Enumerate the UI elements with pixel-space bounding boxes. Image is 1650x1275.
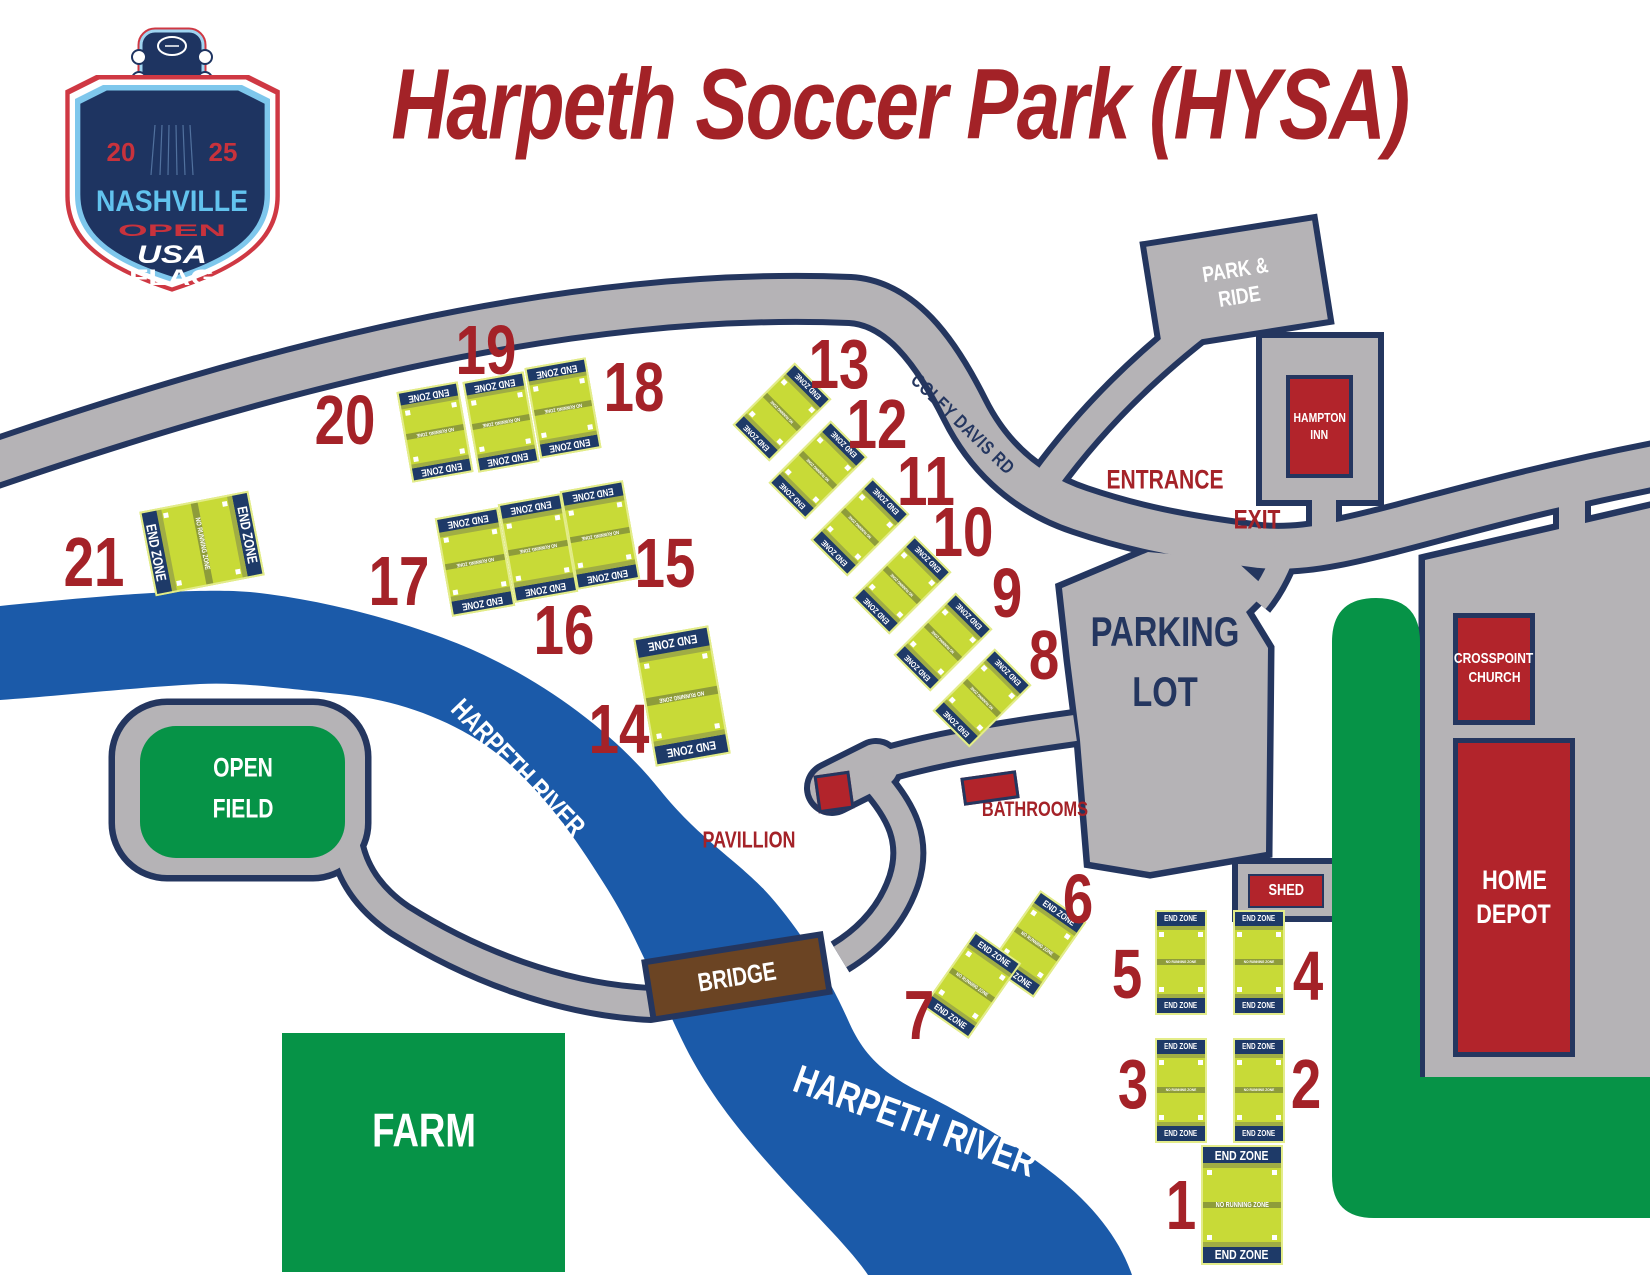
end-zone-label: END ZONE bbox=[1215, 1247, 1269, 1262]
nashville-open-logo: 20 25 NASHVILLE OPEN USA FLAG bbox=[65, 31, 279, 292]
end-zone-label: END ZONE bbox=[1215, 1148, 1269, 1163]
end-zone-label: END ZONE bbox=[1164, 914, 1197, 923]
pavillion-building bbox=[814, 771, 855, 814]
field-number-7: 7 bbox=[904, 975, 934, 1055]
exit-label: EXIT bbox=[1234, 505, 1281, 536]
park-ride-label-line2: RIDE bbox=[1216, 280, 1262, 314]
crosspoint-label-line2: CHURCH bbox=[1468, 669, 1520, 688]
home-depot-label-line2: DEPOT bbox=[1477, 898, 1551, 932]
field-number-4: 4 bbox=[1293, 936, 1323, 1016]
field-number-19: 19 bbox=[456, 310, 517, 390]
no-running-zone-label: NO RUNNING ZONE bbox=[416, 426, 454, 439]
crosspoint-label-line1: CROSSPOINT bbox=[1454, 650, 1533, 669]
corner-marker bbox=[492, 529, 498, 535]
corner-marker bbox=[1276, 987, 1281, 992]
end-zone-label: END ZONE bbox=[1164, 1001, 1197, 1010]
field-number-14: 14 bbox=[589, 689, 650, 769]
no-running-zone-label: NO RUNNING ZONE bbox=[1020, 931, 1055, 958]
corner-marker bbox=[1276, 1115, 1281, 1120]
field-2: END ZONENO RUNNING ZONEEND ZONE bbox=[1233, 1038, 1285, 1143]
logo-year-right: 25 bbox=[209, 137, 238, 167]
field-number-2: 2 bbox=[1291, 1044, 1321, 1124]
no-running-zone-label: NO RUNNING ZONE bbox=[659, 689, 705, 703]
home-depot-label-line1: HOME bbox=[1482, 864, 1547, 898]
parking-lot-label-line1: PARKING bbox=[1091, 608, 1240, 656]
no-running-zone-label: NO RUNNING ZONE bbox=[1215, 1202, 1268, 1209]
corner-marker bbox=[568, 510, 574, 516]
end-zone-label: END ZONE bbox=[1242, 1001, 1275, 1010]
corner-marker bbox=[644, 664, 650, 670]
corner-marker bbox=[533, 386, 539, 392]
corner-marker bbox=[453, 589, 459, 595]
no-running-zone-label: NO RUNNING ZONE bbox=[805, 457, 830, 482]
corner-marker bbox=[177, 579, 183, 585]
field-number-1: 1 bbox=[1166, 1165, 1196, 1245]
corner-marker bbox=[1237, 932, 1242, 937]
no-running-zone-label: NO RUNNING ZONE bbox=[889, 572, 914, 597]
field-number-17: 17 bbox=[369, 541, 430, 621]
entrance-label: ENTRANCE bbox=[1106, 465, 1223, 496]
no-running-zone-label: NO RUNNING ZONE bbox=[1166, 959, 1196, 964]
hampton-inn-building: HAMPTON INN bbox=[1286, 375, 1353, 478]
corner-marker bbox=[1159, 987, 1164, 992]
corner-marker bbox=[1159, 932, 1164, 937]
corner-marker bbox=[564, 567, 570, 573]
field-number-9: 9 bbox=[992, 553, 1022, 633]
corner-marker bbox=[405, 410, 411, 416]
no-running-zone-label: NO RUNNING ZONE bbox=[456, 556, 494, 569]
field-5: END ZONENO RUNNING ZONEEND ZONE bbox=[1155, 910, 1207, 1015]
corner-marker bbox=[526, 439, 532, 445]
corner-marker bbox=[588, 425, 594, 431]
no-running-zone-label: NO RUNNING ZONE bbox=[482, 416, 520, 429]
corner-marker bbox=[1276, 932, 1281, 937]
field-3: END ZONENO RUNNING ZONEEND ZONE bbox=[1155, 1038, 1207, 1143]
end-zone-label: END ZONE bbox=[1242, 914, 1275, 923]
no-running-zone-label: NO RUNNING ZONE bbox=[519, 542, 557, 555]
field-number-21: 21 bbox=[64, 522, 125, 602]
corner-marker bbox=[1198, 987, 1203, 992]
no-running-zone-label: NO RUNNING ZONE bbox=[194, 516, 211, 570]
corner-marker bbox=[656, 733, 662, 739]
field-number-8: 8 bbox=[1029, 615, 1059, 695]
end-zone-label: END ZONE bbox=[1164, 1042, 1197, 1051]
corner-marker bbox=[443, 537, 449, 543]
field-number-3: 3 bbox=[1118, 1044, 1148, 1124]
corner-marker bbox=[702, 653, 708, 659]
no-running-zone-label: NO RUNNING ZONE bbox=[581, 529, 619, 542]
no-running-zone-label: NO RUNNING ZONE bbox=[847, 514, 872, 539]
corner-marker bbox=[1159, 1115, 1164, 1120]
crosspoint-church-building: CROSSPOINT CHURCH bbox=[1453, 613, 1535, 725]
corner-marker bbox=[1207, 1170, 1212, 1175]
corner-marker bbox=[1237, 1060, 1242, 1065]
field-4: END ZONENO RUNNING ZONEEND ZONE bbox=[1233, 910, 1285, 1015]
corner-marker bbox=[579, 377, 585, 383]
open-field-area bbox=[140, 726, 345, 858]
corner-marker bbox=[479, 447, 485, 453]
shed-building: SHED bbox=[1248, 874, 1324, 908]
corner-marker bbox=[1237, 1115, 1242, 1120]
field-number-15: 15 bbox=[635, 523, 696, 603]
farm-label: FARM bbox=[372, 1103, 476, 1158]
corner-marker bbox=[517, 391, 523, 397]
field-number-13: 13 bbox=[809, 324, 870, 404]
corner-marker bbox=[1198, 1115, 1203, 1120]
corner-marker bbox=[222, 501, 228, 507]
logo-event: OPEN bbox=[118, 221, 226, 240]
corner-marker bbox=[1159, 1060, 1164, 1065]
logo-org-bottom: FLAG bbox=[129, 265, 215, 290]
logo-city: NASHVILLE bbox=[96, 185, 248, 218]
open-field-label-line1: OPEN bbox=[213, 753, 273, 784]
field-number-20: 20 bbox=[315, 380, 376, 460]
page-title: Harpeth Soccer Park (HYSA) bbox=[391, 48, 1408, 163]
no-running-zone-label: NO RUNNING ZONE bbox=[1166, 1087, 1196, 1092]
corner-marker bbox=[1237, 987, 1242, 992]
no-running-zone-label: NO RUNNING ZONE bbox=[930, 629, 955, 654]
open-field-label-line2: FIELD bbox=[213, 794, 274, 825]
home-depot-building: HOME DEPOT bbox=[1453, 738, 1575, 1057]
corner-marker bbox=[235, 568, 241, 574]
no-running-zone-label: NO RUNNING ZONE bbox=[969, 685, 994, 710]
end-zone-label: END ZONE bbox=[1242, 1129, 1275, 1138]
end-zone-label: END ZONE bbox=[1164, 1129, 1197, 1138]
corner-marker bbox=[1272, 1235, 1277, 1240]
no-running-zone-label: NO RUNNING ZONE bbox=[769, 399, 794, 424]
corner-marker bbox=[451, 401, 457, 407]
end-zone-label: END ZONE bbox=[1242, 1042, 1275, 1051]
field-number-5: 5 bbox=[1112, 934, 1142, 1014]
logo-year-left: 20 bbox=[107, 137, 136, 167]
corner-marker bbox=[501, 581, 507, 587]
pavillion-label: PAVILLION bbox=[702, 827, 795, 854]
hampton-label-line1: HAMPTON bbox=[1293, 410, 1345, 426]
field-1: END ZONENO RUNNING ZONEEND ZONE bbox=[1201, 1145, 1283, 1265]
corner-marker bbox=[555, 515, 561, 521]
hampton-label-line2: INN bbox=[1311, 427, 1329, 443]
corner-marker bbox=[413, 457, 419, 463]
corner-marker bbox=[460, 449, 466, 455]
parking-lot-label-line2: LOT bbox=[1132, 668, 1198, 716]
corner-marker bbox=[541, 433, 547, 439]
corner-marker bbox=[163, 512, 169, 518]
no-running-zone-label: NO RUNNING ZONE bbox=[1244, 959, 1274, 964]
corner-marker bbox=[617, 502, 623, 508]
shed-label: SHED bbox=[1268, 881, 1304, 901]
park-map: 20 25 NASHVILLE OPEN USA FLAG Harpeth So… bbox=[0, 0, 1650, 1275]
corner-marker bbox=[506, 523, 512, 529]
bathrooms-label: BATHROOMS bbox=[982, 798, 1088, 822]
no-running-zone-label: NO RUNNING ZONE bbox=[1244, 1087, 1274, 1092]
no-running-zone-label: NO RUNNING ZONE bbox=[955, 972, 990, 999]
field-number-6: 6 bbox=[1063, 859, 1093, 939]
field-number-16: 16 bbox=[534, 590, 595, 670]
corner-marker bbox=[1198, 932, 1203, 937]
corner-marker bbox=[626, 554, 632, 560]
corner-marker bbox=[516, 575, 522, 581]
no-running-zone-label: NO RUNNING ZONE bbox=[544, 402, 582, 415]
corner-marker bbox=[1276, 1060, 1281, 1065]
field-number-18: 18 bbox=[604, 347, 665, 427]
corner-marker bbox=[715, 723, 721, 729]
corner-marker bbox=[1207, 1235, 1212, 1240]
corner-marker bbox=[578, 562, 584, 568]
corner-marker bbox=[1198, 1060, 1203, 1065]
corner-marker bbox=[471, 400, 477, 406]
corner-marker bbox=[1272, 1170, 1277, 1175]
